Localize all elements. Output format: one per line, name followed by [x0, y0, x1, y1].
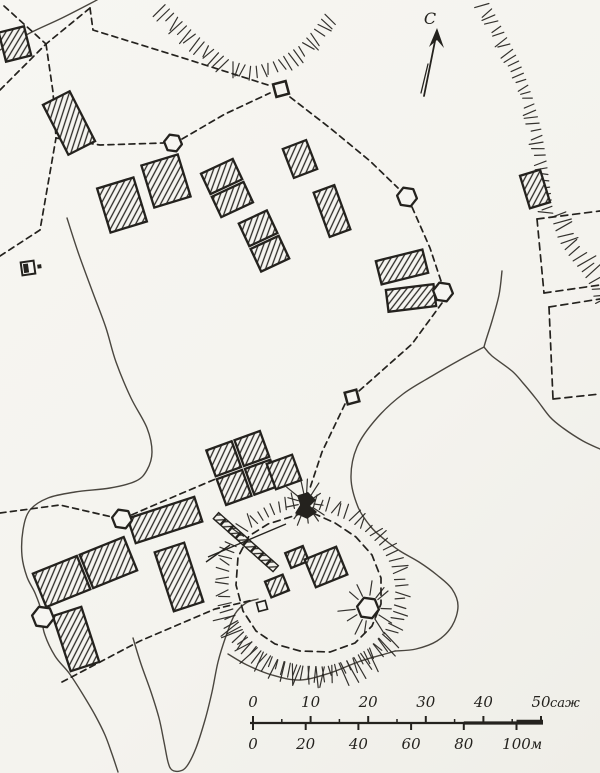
hachure-tick: [318, 25, 331, 31]
building: [376, 250, 428, 285]
building: [201, 159, 253, 217]
hachure-tick: [184, 34, 196, 43]
scale-label-sazhen: 20: [358, 693, 379, 711]
hachure-tick: [504, 55, 515, 62]
building-hatch: [283, 140, 317, 178]
hachure-tick: [526, 123, 539, 124]
hachure-tick: [361, 519, 364, 529]
building-hatch: [80, 537, 138, 588]
hachure-tick: [255, 652, 264, 671]
hachure-tick: [542, 206, 552, 210]
hachure-ray: [350, 592, 359, 600]
hachure-tick: [386, 550, 397, 555]
hachure-tick: [240, 648, 257, 664]
hachure-tick: [256, 66, 257, 77]
hachure-tick: [219, 555, 232, 558]
building: [386, 284, 436, 312]
hachure-ray: [376, 588, 384, 598]
scale-label-meters: 100: [502, 735, 531, 753]
hachure-tick: [178, 26, 187, 35]
hachure-tick: [216, 590, 228, 596]
survey-node-square: [273, 81, 289, 97]
hachure-ray: [357, 585, 363, 597]
building: [0, 26, 31, 61]
hachure-tick: [270, 504, 275, 515]
hachure-tick: [589, 274, 600, 284]
hachure-tick: [366, 525, 373, 531]
north-arrow: C: [421, 9, 444, 96]
hachure-tick: [578, 256, 596, 266]
terrain-line: [22, 218, 152, 772]
survey-node-hex: [32, 607, 54, 627]
hachure-tick: [220, 609, 233, 613]
hachure-tick: [241, 642, 252, 654]
hachure-ray: [347, 615, 357, 621]
scale-label-sazhen: 10: [301, 693, 321, 711]
scale-label-sazhen: 50: [531, 693, 551, 711]
hachure-tick: [279, 502, 281, 512]
hachure-tick: [482, 9, 491, 17]
building: [285, 546, 309, 568]
building: [283, 140, 317, 178]
hachure-tick: [573, 253, 586, 261]
scale-label-meters: 0: [248, 735, 258, 753]
hachure-tick: [512, 73, 523, 78]
hachure-tick: [511, 67, 521, 72]
dashed-road: [182, 93, 270, 139]
boundary-mark-dot: [37, 264, 42, 269]
scale-bar: 01020304050саж020406080100м: [248, 693, 580, 753]
building: [33, 537, 137, 607]
hachure-tick: [368, 649, 379, 671]
dashed-boundary: [544, 285, 600, 293]
hachure-tick: [493, 32, 504, 36]
hachure-tick: [384, 632, 398, 647]
hachure-tick: [273, 62, 278, 72]
hachure-tick: [239, 65, 245, 76]
hachure-tick: [518, 85, 528, 91]
hachure-tick: [216, 577, 228, 579]
hachure-tick: [582, 263, 594, 271]
building: [141, 154, 190, 207]
hachure-tick: [524, 117, 537, 119]
hachure-tick: [392, 566, 408, 567]
boundaries-layer: [236, 211, 600, 652]
hachure-tick: [250, 516, 258, 524]
hachure-tick: [293, 665, 297, 676]
hachure-tick: [529, 142, 543, 144]
survey-node-hex: [433, 283, 453, 302]
scale-label-meters: 80: [454, 735, 474, 753]
site-plan-drawing: C01020304050саж020406080100м: [0, 0, 600, 773]
hachure-tick: [586, 264, 600, 278]
scale-label-sazhen: 30: [416, 693, 436, 711]
buildings-layer: [0, 26, 550, 671]
hachure-tick: [326, 497, 330, 511]
hachure-tick: [521, 92, 530, 95]
dashed-boundary: [549, 299, 600, 307]
hachure-tick: [293, 666, 301, 686]
building: [265, 575, 289, 598]
hachure-tick: [516, 79, 526, 82]
hachure-comb: [153, 5, 335, 81]
terrain-line: [484, 271, 502, 347]
hachure-tick: [475, 4, 489, 8]
hachure-tick: [524, 104, 534, 108]
hachure-tick: [300, 666, 303, 679]
survey-node-square: [256, 600, 267, 611]
hachure-tick: [166, 13, 174, 21]
scale-label-meters: 60: [402, 735, 422, 753]
hachure-tick: [396, 585, 408, 586]
hachure-tick: [531, 135, 542, 140]
hachure-tick: [258, 512, 263, 520]
hachure-layer: [153, 4, 600, 688]
hachure-tick: [508, 61, 518, 66]
hachure-tick: [349, 510, 360, 521]
hachure-tick: [325, 14, 335, 24]
building: [239, 210, 289, 271]
terrain-line: [133, 599, 258, 771]
building: [128, 497, 203, 543]
hachure-tick: [386, 629, 398, 632]
building: [97, 177, 147, 232]
hachure-ray: [375, 619, 384, 634]
north-label: C: [424, 9, 436, 28]
building: [43, 91, 95, 155]
hachure-tick: [249, 66, 251, 80]
scale-label-meters: 40: [348, 735, 369, 753]
dashed-boundary: [236, 513, 381, 652]
hachure-ray: [301, 481, 304, 495]
hachure-ray: [365, 621, 367, 633]
hachure-tick: [501, 49, 512, 58]
hachure-ray: [378, 591, 388, 600]
hachure-tick: [538, 212, 553, 214]
survey-node-hex: [397, 188, 417, 207]
building-hatch: [33, 556, 91, 607]
scale-unit-meters: м: [531, 737, 543, 753]
hachure-ray: [286, 505, 298, 508]
hachure-tick: [344, 504, 349, 518]
hachure-tick: [285, 497, 286, 509]
hachure-tick: [531, 129, 541, 131]
hachure-tick: [235, 642, 252, 651]
hachure-tick: [535, 161, 547, 165]
dashed-road: [0, 505, 112, 517]
hachure-tick: [299, 47, 305, 57]
dashed-boundary: [553, 394, 600, 399]
scale-label-sazhen: 40: [473, 693, 494, 711]
hachure-ray: [355, 620, 362, 635]
hachure-tick: [393, 567, 407, 573]
scanned-site-plan-page: C01020304050саж020406080100м: [0, 0, 600, 773]
dashed-road: [0, 138, 56, 256]
hachure-tick: [394, 611, 408, 616]
hachure-tick: [395, 598, 405, 599]
survey-node-hex: [164, 135, 182, 152]
hachure-tick: [288, 663, 291, 677]
hachure-ray: [379, 615, 392, 623]
survey-node-hex: [112, 510, 132, 529]
hachure-tick: [264, 508, 269, 517]
hachure-tick: [592, 288, 600, 289]
building: [314, 185, 351, 237]
hachure-tick: [594, 295, 600, 296]
hachure-tick: [207, 53, 219, 66]
hachure-tick: [391, 618, 404, 620]
hachure-tick: [396, 592, 410, 597]
boundary-mark: [21, 260, 43, 276]
hachure-tick: [314, 667, 316, 683]
survey-node-square: [345, 390, 360, 405]
hachure-tick: [395, 605, 406, 609]
hachure-tick: [279, 60, 286, 69]
survey-node-hex: [357, 598, 379, 618]
hachure-tick: [215, 582, 228, 584]
dashed-boundary: [537, 219, 544, 293]
hachure-tick: [220, 559, 229, 565]
scale-label-meters: 20: [295, 735, 316, 753]
hachure-tick: [569, 247, 579, 256]
building: [520, 170, 550, 209]
dashed-road: [46, 8, 90, 44]
hachure-ray: [338, 609, 355, 611]
hachure-tick: [498, 44, 510, 47]
hachure-tick: [216, 567, 228, 571]
scale-label-sazhen: 0: [248, 693, 258, 711]
dashed-road: [90, 8, 268, 85]
building-hatch: [305, 547, 348, 588]
hachure-tick: [389, 558, 403, 562]
scale-unit-sazhen: саж: [550, 696, 580, 711]
hachure-tick: [315, 29, 325, 36]
hachure-tick: [378, 639, 387, 652]
entrance-ruin-symbol: [296, 493, 316, 518]
hachure-ray: [370, 581, 372, 595]
causeway-spur-line: [206, 545, 230, 562]
hachure-tick: [492, 26, 501, 32]
hachure-comb: [552, 212, 600, 304]
dashed-road: [309, 404, 345, 491]
hachure-tick: [389, 623, 403, 630]
building: [305, 547, 348, 588]
dashed-boundary: [549, 307, 553, 399]
building-hatch: [128, 497, 203, 543]
terrain-line: [484, 347, 600, 449]
hachure-tick: [523, 110, 535, 115]
hachure-tick: [262, 65, 267, 77]
hachure-tick: [485, 21, 498, 24]
hachure-tick: [558, 234, 573, 238]
building: [155, 543, 204, 612]
hachure-tick: [370, 529, 382, 536]
north-arrow-head: [429, 28, 444, 48]
